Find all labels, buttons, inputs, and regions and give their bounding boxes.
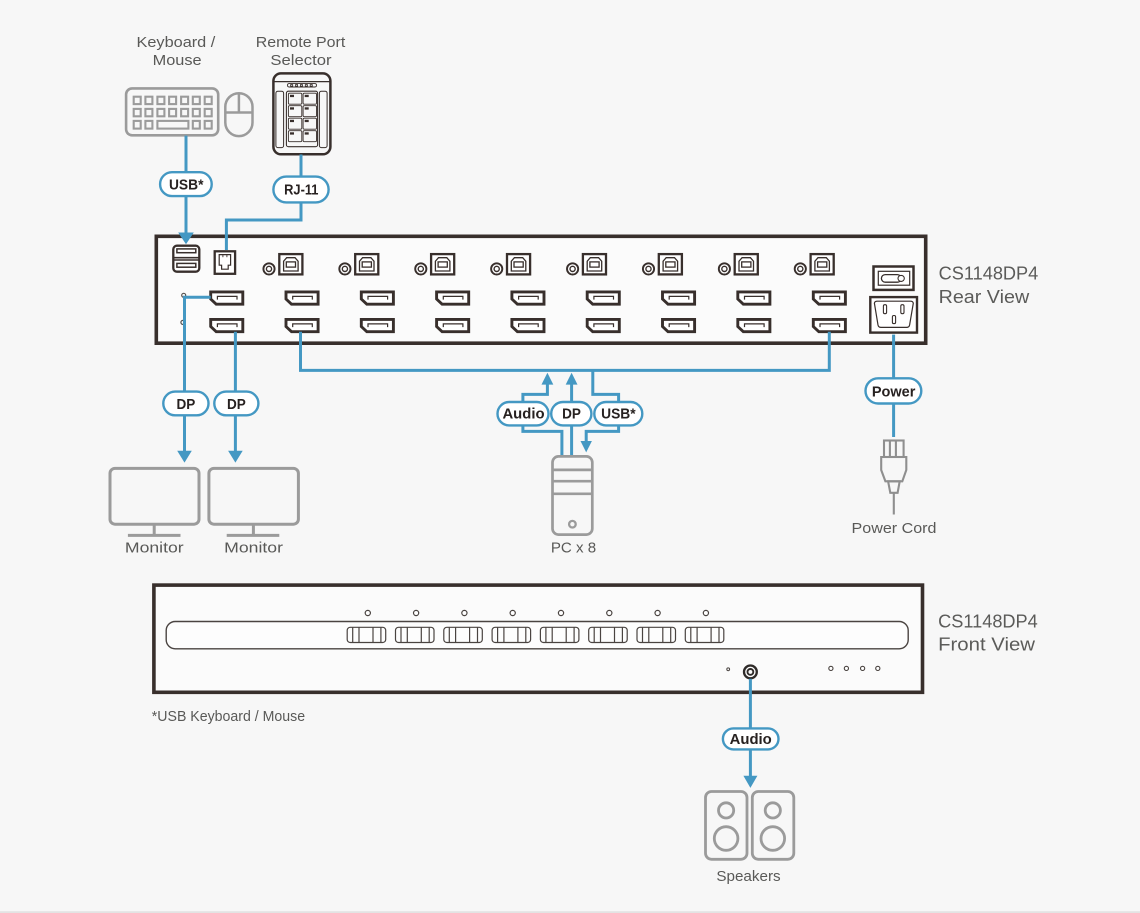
- svg-text:DP: DP: [227, 396, 246, 413]
- svg-text:Audio: Audio: [502, 405, 544, 422]
- svg-text:Selector: Selector: [270, 52, 331, 69]
- svg-text:Monitor: Monitor: [224, 540, 283, 557]
- svg-text:Remote Port: Remote Port: [256, 34, 346, 51]
- svg-text:Speakers: Speakers: [716, 868, 780, 885]
- svg-text:Power: Power: [872, 383, 916, 400]
- svg-text:*USB Keyboard / Mouse: *USB Keyboard / Mouse: [152, 708, 305, 725]
- svg-text:Rear View: Rear View: [939, 287, 1031, 307]
- svg-text:CS1148DP4: CS1148DP4: [939, 264, 1039, 284]
- svg-text:PC x 8: PC x 8: [551, 540, 596, 557]
- svg-text:Audio: Audio: [730, 731, 772, 748]
- svg-text:DP: DP: [562, 405, 581, 422]
- svg-text:Front View: Front View: [938, 634, 1036, 654]
- svg-text:RJ-11: RJ-11: [284, 182, 318, 199]
- svg-text:CS1148DP4: CS1148DP4: [938, 611, 1038, 631]
- svg-text:DP: DP: [177, 396, 196, 413]
- svg-text:USB*: USB*: [169, 177, 204, 194]
- svg-text:USB*: USB*: [601, 405, 636, 422]
- svg-text:Power Cord: Power Cord: [852, 520, 937, 537]
- svg-text:Monitor: Monitor: [125, 540, 184, 557]
- svg-text:Keyboard /: Keyboard /: [137, 34, 217, 51]
- svg-text:Mouse: Mouse: [153, 52, 202, 69]
